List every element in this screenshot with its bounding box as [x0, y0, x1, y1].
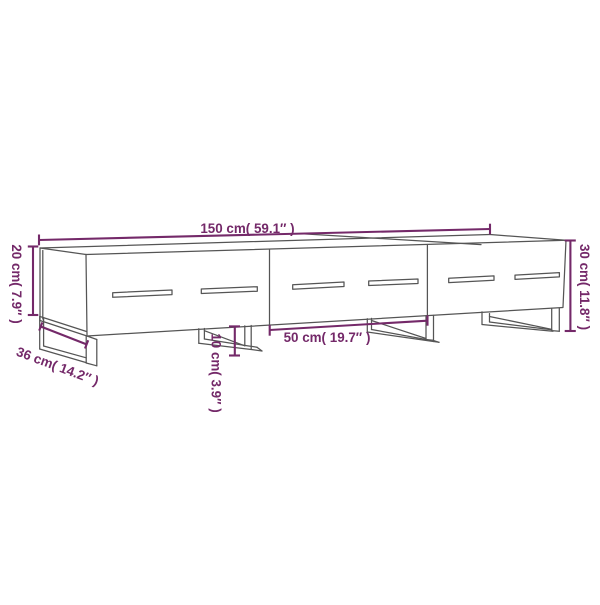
svg-text:150 cm( 59.1″ ): 150 cm( 59.1″ ): [200, 221, 294, 236]
svg-text:50 cm( 19.7″ ): 50 cm( 19.7″ ): [284, 330, 371, 345]
svg-text:10 cm( 3.9″ ): 10 cm( 3.9″ ): [209, 333, 224, 412]
svg-text:20 cm( 7.9″ ): 20 cm( 7.9″ ): [9, 244, 24, 323]
svg-text:30 cm( 11.8″ ): 30 cm( 11.8″ ): [577, 244, 592, 330]
